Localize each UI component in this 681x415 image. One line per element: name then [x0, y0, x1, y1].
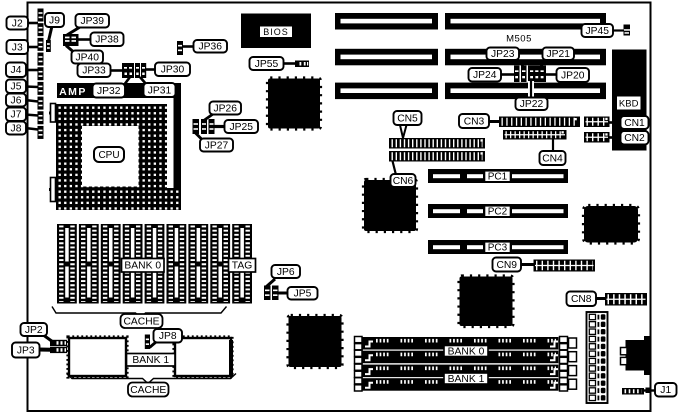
svg-text:JP36: JP36: [199, 42, 223, 53]
svg-text:BIOS: BIOS: [263, 27, 289, 37]
svg-text:JP21: JP21: [547, 49, 571, 60]
svg-text:JP55: JP55: [255, 59, 279, 70]
svg-text:J8: J8: [11, 123, 22, 134]
svg-text:BANK 1: BANK 1: [132, 355, 169, 366]
svg-text:J3: J3: [12, 42, 23, 53]
svg-text:JP22: JP22: [520, 99, 544, 110]
svg-text:JP38: JP38: [95, 35, 119, 46]
svg-text:JP33: JP33: [82, 66, 106, 77]
svg-text:J2: J2: [12, 18, 23, 29]
svg-text:CN8: CN8: [571, 294, 592, 305]
svg-text:JP45: JP45: [586, 26, 610, 37]
svg-text:CN9: CN9: [496, 260, 517, 271]
svg-text:J9: J9: [49, 15, 60, 26]
svg-text:JP31: JP31: [148, 85, 172, 96]
svg-text:JP23: JP23: [491, 49, 515, 60]
svg-text:CN2: CN2: [624, 133, 645, 144]
svg-text:JP24: JP24: [473, 70, 497, 81]
svg-text:J6: J6: [11, 95, 22, 106]
svg-text:CN5: CN5: [397, 113, 418, 124]
svg-text:CN6: CN6: [393, 176, 414, 187]
svg-text:BANK 0: BANK 0: [448, 346, 485, 357]
svg-text:JP8: JP8: [159, 331, 177, 342]
svg-text:PC1: PC1: [488, 172, 508, 183]
svg-text:JP20: JP20: [561, 70, 585, 81]
svg-text:TAG: TAG: [232, 261, 252, 272]
svg-text:JP25: JP25: [230, 122, 254, 133]
svg-text:JP3: JP3: [17, 345, 35, 356]
svg-text:CACHE: CACHE: [123, 316, 159, 327]
svg-text:CACHE: CACHE: [130, 385, 166, 396]
svg-text:CPU: CPU: [98, 150, 119, 161]
svg-text:JP40: JP40: [76, 52, 100, 63]
svg-text:J1: J1: [660, 385, 671, 396]
svg-text:JP2: JP2: [25, 325, 43, 336]
svg-text:CN1: CN1: [624, 118, 645, 129]
svg-text:BANK 0: BANK 0: [124, 261, 161, 272]
svg-text:CN4: CN4: [542, 153, 563, 164]
svg-text:J4: J4: [11, 65, 22, 76]
svg-text:JP39: JP39: [81, 16, 105, 27]
svg-text:AMP: AMP: [59, 86, 87, 98]
svg-text:PC3: PC3: [488, 243, 508, 254]
svg-text:JP26: JP26: [214, 103, 238, 114]
svg-text:JP30: JP30: [161, 65, 185, 76]
svg-text:BANK 1: BANK 1: [448, 374, 485, 385]
svg-text:KBD: KBD: [619, 99, 639, 110]
svg-text:J5: J5: [11, 82, 22, 93]
svg-text:JP32: JP32: [97, 86, 121, 97]
svg-text:J7: J7: [11, 110, 22, 121]
svg-text:JP27: JP27: [205, 140, 229, 151]
svg-text:JP5: JP5: [294, 289, 312, 300]
svg-text:M505: M505: [506, 34, 532, 45]
svg-text:JP6: JP6: [277, 267, 295, 278]
svg-text:CN3: CN3: [464, 116, 485, 127]
svg-text:PC2: PC2: [488, 207, 508, 218]
